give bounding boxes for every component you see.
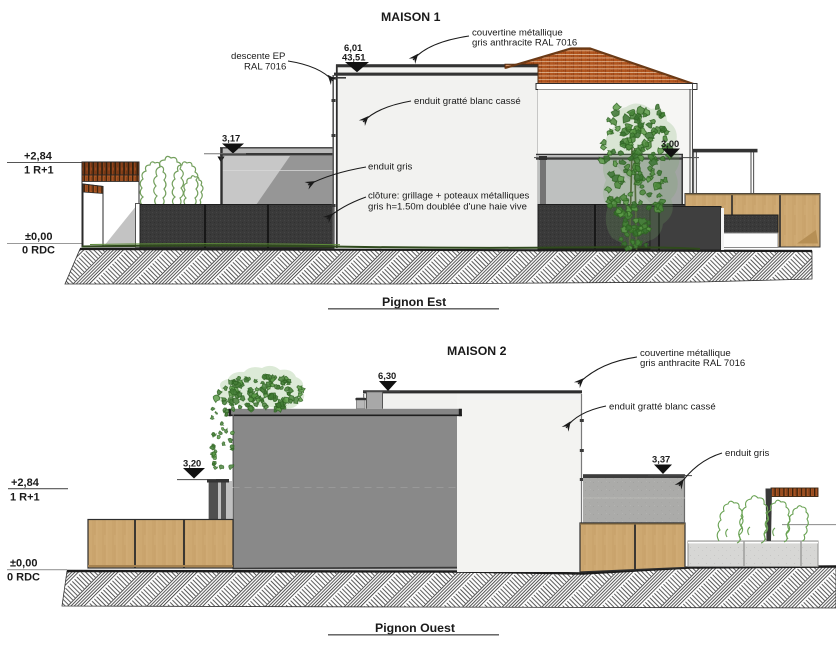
svg-text:enduit gratté blanc cassé: enduit gratté blanc cassé — [609, 402, 716, 413]
svg-text:0 RDC: 0 RDC — [22, 245, 55, 257]
svg-text:gris anthracite RAL 7016: gris anthracite RAL 7016 — [640, 358, 745, 369]
svg-text:descente EP: descente EP — [231, 51, 285, 62]
svg-text:±0,00: ±0,00 — [25, 231, 52, 243]
svg-text:gris h=1.50m doublée d'une hai: gris h=1.50m doublée d'une haie vive — [368, 202, 527, 213]
svg-text:+2,84: +2,84 — [11, 477, 40, 489]
svg-text:clôture: grillage + poteaux mé: clôture: grillage + poteaux métalliques — [368, 191, 530, 202]
svg-text:enduit gris: enduit gris — [368, 162, 412, 173]
svg-text:0 RDC: 0 RDC — [7, 572, 40, 584]
svg-text:1 R+1: 1 R+1 — [10, 492, 40, 504]
svg-text:Pignon Est: Pignon Est — [382, 295, 446, 309]
svg-text:MAISON 1: MAISON 1 — [381, 10, 441, 24]
svg-text:+2,84: +2,84 — [24, 151, 53, 163]
svg-text:MAISON 2: MAISON 2 — [447, 344, 507, 358]
svg-text:3,17: 3,17 — [222, 133, 240, 144]
svg-text:6,30: 6,30 — [378, 370, 396, 381]
svg-text:enduit gris: enduit gris — [725, 448, 769, 459]
svg-text:Pignon Ouest: Pignon Ouest — [375, 621, 455, 635]
svg-text:1 R+1: 1 R+1 — [24, 165, 54, 177]
svg-text:3,00: 3,00 — [661, 138, 679, 149]
svg-text:3,20: 3,20 — [183, 458, 201, 469]
svg-text:±0,00: ±0,00 — [10, 558, 37, 570]
svg-text:RAL 7016: RAL 7016 — [244, 62, 286, 73]
svg-text:43,51: 43,51 — [342, 52, 365, 63]
svg-text:enduit gratté blanc cassé: enduit gratté blanc cassé — [414, 96, 521, 107]
svg-text:gris anthracite RAL 7016: gris anthracite RAL 7016 — [472, 38, 577, 49]
svg-text:3,37: 3,37 — [652, 454, 670, 465]
